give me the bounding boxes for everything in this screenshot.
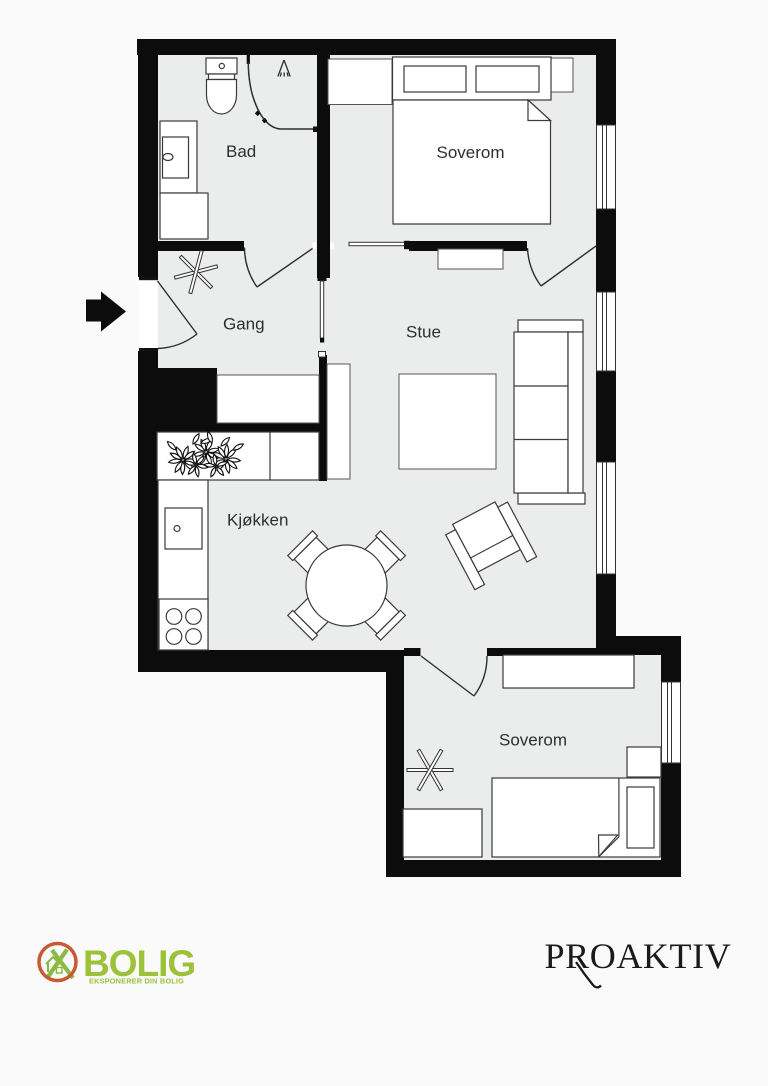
svg-text:Kjøkken: Kjøkken xyxy=(227,511,288,530)
svg-text:Soverom: Soverom xyxy=(499,731,567,750)
svg-text:Bad: Bad xyxy=(226,142,256,161)
svg-text:PROAKTIV: PROAKTIV xyxy=(545,936,732,976)
svg-text:Soverom: Soverom xyxy=(437,143,505,162)
svg-text:EKSPONERER DIN BOLIG: EKSPONERER DIN BOLIG xyxy=(89,977,184,986)
svg-text:Stue: Stue xyxy=(406,323,441,342)
svg-text:Gang: Gang xyxy=(223,315,265,334)
